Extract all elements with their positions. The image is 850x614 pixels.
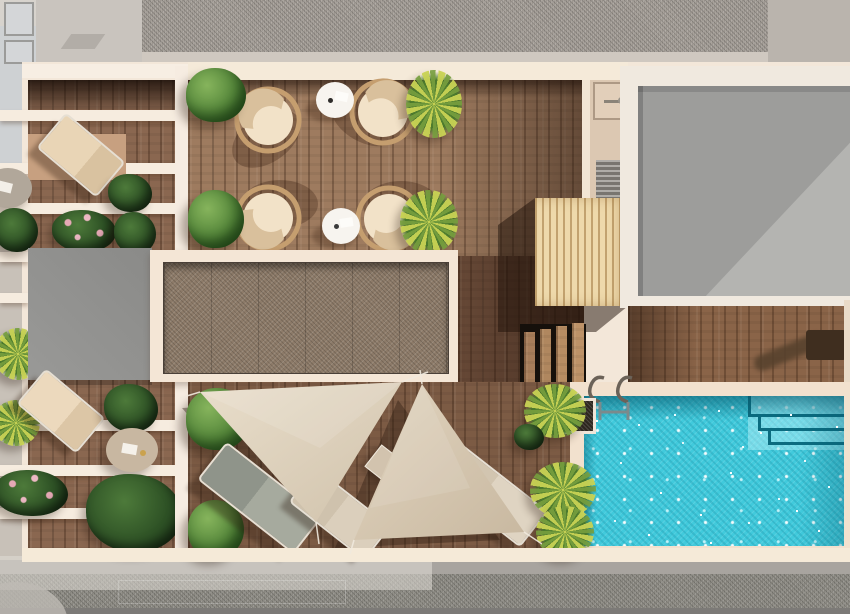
pool-right-depth [800,396,844,546]
plant-bush [188,190,244,248]
table-cup [334,224,339,229]
skylight-panel [4,40,34,64]
skylight-panel [4,2,34,36]
plant-tropical [104,384,158,432]
slat-pergola-roof [535,198,628,306]
plant-palm [406,70,462,138]
shade-sails [170,368,542,558]
plant-palm [400,190,458,254]
ladder-rails [600,402,628,420]
cafe-table [316,82,354,118]
pavement-marking [118,580,346,604]
table-napkin [339,217,353,228]
ladder-handle [618,377,632,402]
rooftop-render [0,0,850,614]
table-cup [140,450,146,456]
pergola-beam [0,252,28,262]
roof-volume-top-shadow [638,86,850,92]
concrete-roof-box [28,248,152,380]
table-tray [0,180,13,193]
skylight-pebble-panel [163,262,449,374]
street-top [142,0,768,53]
louver-vent [596,160,622,202]
plant-tropical [108,174,152,212]
service-divider-wall [582,80,590,202]
pergola-beam [0,110,188,121]
table-cup [328,98,333,103]
left-terrace-shadow-band [28,80,188,114]
plant-bush [186,68,246,122]
pergola-beam [0,293,28,303]
plant-flowering [52,210,116,252]
left-terrace-north-wall [22,64,188,78]
street-bottom-edge [0,608,850,614]
pool-step-edge [768,428,771,444]
roof-volume-edge-shadow [638,86,643,296]
water-spout [806,330,846,360]
street-top-right [768,0,850,68]
